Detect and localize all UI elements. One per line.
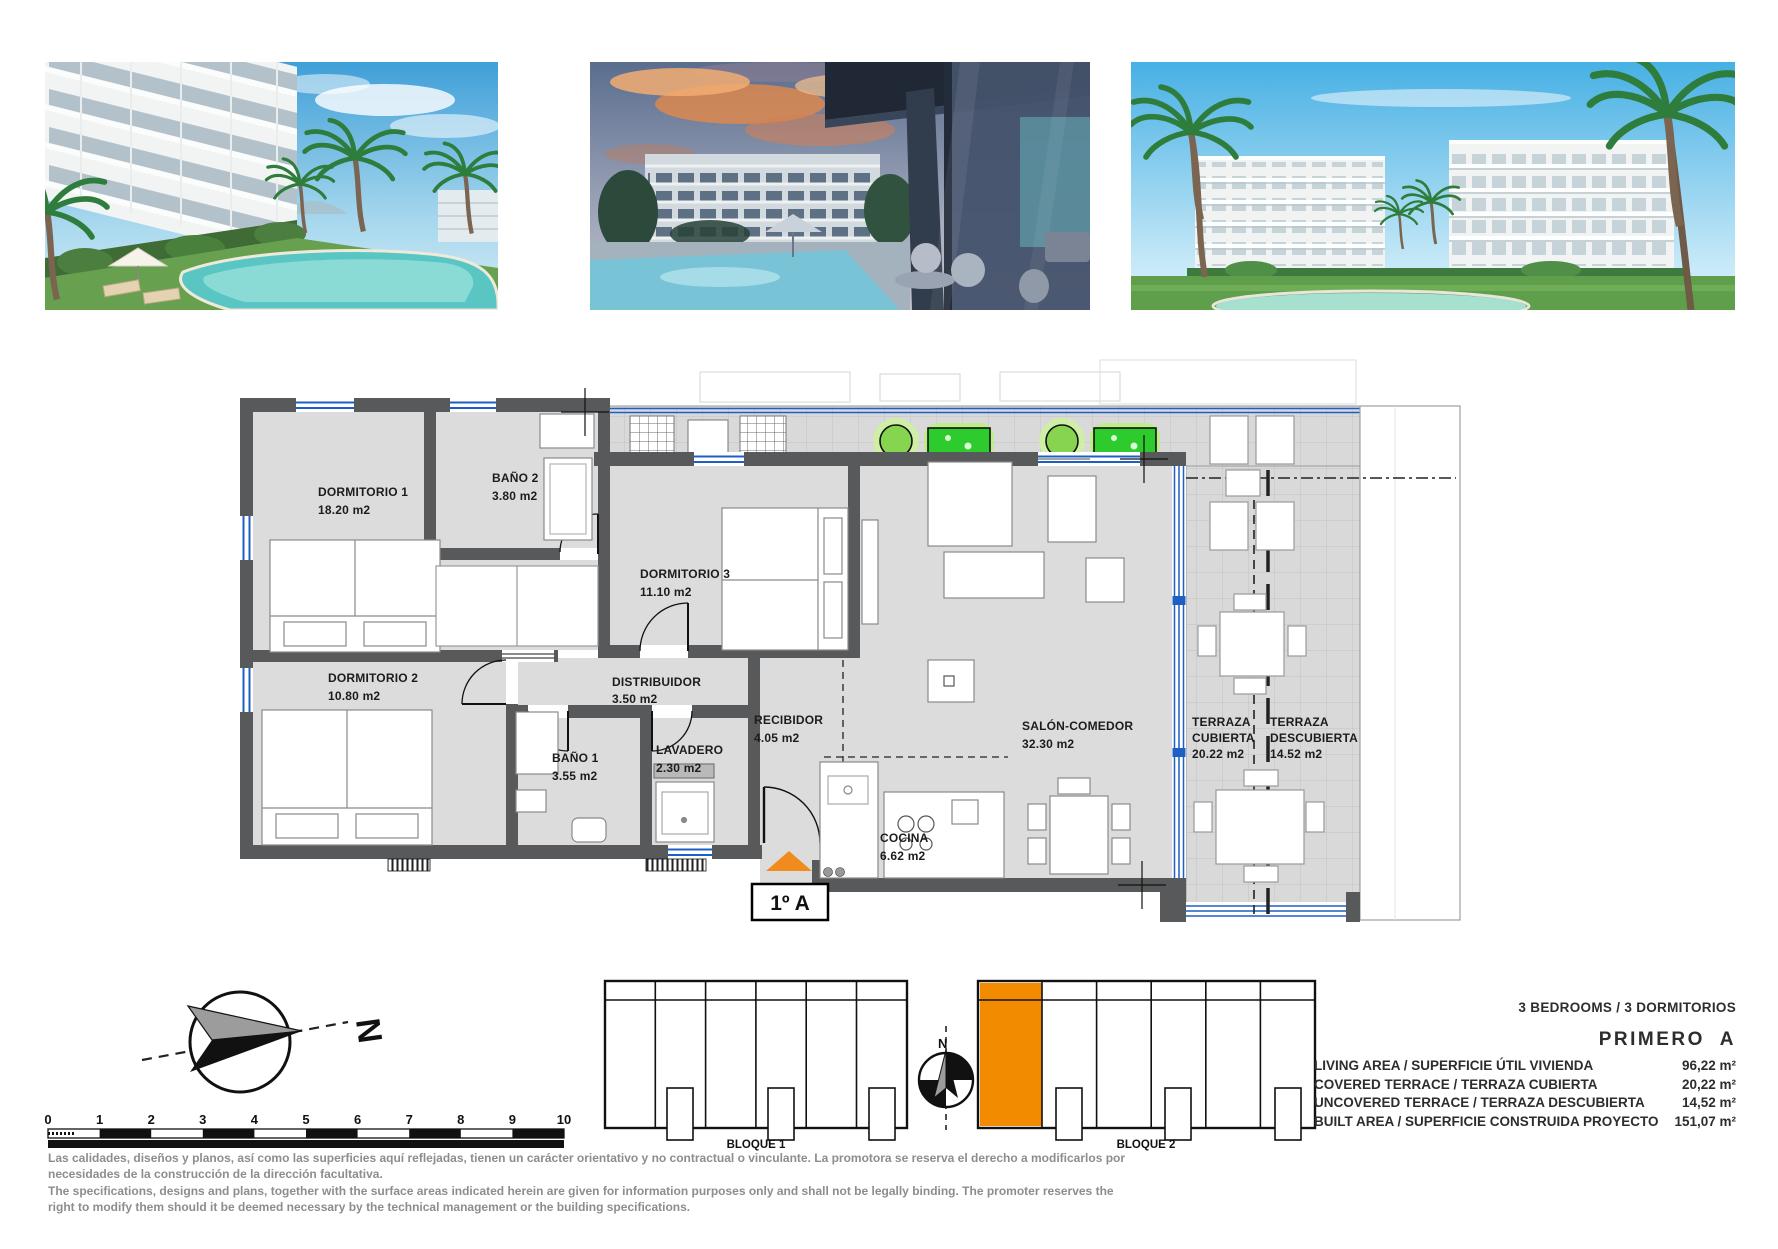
- svg-text:6: 6: [354, 1112, 361, 1127]
- spec-value: 20,22 m²: [1682, 1077, 1736, 1096]
- room-label-recibidor: RECIBIDOR: [754, 713, 823, 727]
- spec-value: 96,22 m²: [1682, 1058, 1736, 1077]
- room-label-terraza-cubierta-1: TERRAZA: [1192, 715, 1251, 729]
- spec-label: BUILT AREA / SUPERFICIE CONSTRUIDA PROYE…: [1314, 1114, 1659, 1133]
- spec-label: UNCOVERED TERRACE / TERRAZA DESCUBIERTA: [1314, 1095, 1645, 1114]
- svg-text:10: 10: [557, 1112, 571, 1127]
- room-label-distribuidor: DISTRIBUIDOR: [612, 675, 701, 689]
- disclaimer-en-line1: The specifications, designs and plans, t…: [48, 1183, 1128, 1199]
- room-area-dormitorio2: 10.80 m2: [328, 689, 380, 703]
- room-area-bano1: 3.55 m2: [552, 769, 598, 783]
- svg-text:8: 8: [457, 1112, 464, 1127]
- spec-row-uncovered: UNCOVERED TERRACE / TERRAZA DESCUBIERTA …: [1280, 1095, 1736, 1114]
- room-area-recibidor: 4.05 m2: [754, 731, 800, 745]
- bloque2-diagram: BLOQUE 2: [978, 981, 1315, 1151]
- spec-row-living: LIVING AREA / SUPERFICIE ÚTIL VIVIENDA 9…: [1280, 1058, 1736, 1077]
- svg-text:7: 7: [406, 1112, 413, 1127]
- room-label-terraza-descubierta-1: TERRAZA: [1270, 715, 1329, 729]
- room-area-cocina: 6.62 m2: [880, 849, 926, 863]
- unit-name: PRIMERO A: [1280, 1029, 1736, 1051]
- room-area-dormitorio1: 18.20 m2: [318, 503, 370, 517]
- spec-value: 14,52 m²: [1682, 1095, 1736, 1114]
- room-label-dormitorio3: DORMITORIO 3: [640, 567, 730, 581]
- scale-bar: 0 1 2 3 4 5 6 7 8 9 10: [44, 1112, 571, 1148]
- svg-text:3: 3: [199, 1112, 206, 1127]
- spec-row-built: BUILT AREA / SUPERFICIE CONSTRUIDA PROYE…: [1280, 1114, 1736, 1133]
- disclaimer-en-line2: right to modify them should it be deemed…: [48, 1199, 1128, 1215]
- room-label-salon: SALÓN-COMEDOR: [1022, 718, 1133, 733]
- site-section: N 0 1 2 3 4 5 6 7 8 9 10: [44, 981, 1315, 1151]
- svg-text:5: 5: [302, 1112, 309, 1127]
- room-label-cocina: COCINA: [880, 831, 929, 845]
- legal-disclaimer: Las calidades, diseños y planos, así com…: [48, 1150, 1128, 1216]
- north-small-label: N: [938, 1036, 947, 1051]
- svg-text:0: 0: [44, 1112, 51, 1127]
- unit-label: 1º A: [770, 892, 810, 915]
- room-label-bano1: BAÑO 1: [552, 750, 599, 765]
- disclaimer-es-line1: Las calidades, diseños y planos, así com…: [48, 1150, 1128, 1166]
- room-label-terraza-cubierta-2: CUBIERTA: [1192, 731, 1255, 745]
- room-area-terraza-descubierta: 14.52 m2: [1270, 747, 1322, 761]
- room-label-dormitorio2: DORMITORIO 2: [328, 671, 418, 685]
- room-label-lavadero: LAVADERO: [656, 743, 723, 757]
- svg-text:4: 4: [251, 1112, 259, 1127]
- room-label-bano2: BAÑO 2: [492, 470, 539, 485]
- room-label-terraza-descubierta-2: DESCUBIERTA: [1270, 731, 1358, 745]
- floor-plan: 1º A: [240, 360, 1460, 922]
- spec-value: 151,07 m²: [1674, 1114, 1736, 1133]
- bloque1-diagram: BLOQUE 1: [605, 981, 907, 1151]
- north-arrow-icon: N: [919, 1026, 973, 1130]
- unit-specs: 3 BEDROOMS / 3 DORMITORIOS PRIMERO A LIV…: [1280, 1000, 1736, 1132]
- north-label: N: [348, 1016, 389, 1046]
- spec-label: LIVING AREA / SUPERFICIE ÚTIL VIVIENDA: [1314, 1058, 1593, 1077]
- svg-text:9: 9: [509, 1112, 516, 1127]
- room-area-bano2: 3.80 m2: [492, 489, 538, 503]
- room-area-lavadero: 2.30 m2: [656, 761, 702, 775]
- spec-row-covered: COVERED TERRACE / TERRAZA CUBIERTA 20,22…: [1280, 1077, 1736, 1096]
- room-area-terraza-cubierta: 20.22 m2: [1192, 747, 1244, 761]
- room-area-distribuidor: 3.50 m2: [612, 692, 658, 706]
- svg-text:2: 2: [148, 1112, 155, 1127]
- spec-label: COVERED TERRACE / TERRAZA CUBIERTA: [1314, 1077, 1598, 1096]
- svg-text:1: 1: [96, 1112, 103, 1127]
- bedrooms-line: 3 BEDROOMS / 3 DORMITORIOS: [1280, 1000, 1736, 1015]
- room-area-dormitorio3: 11.10 m2: [640, 585, 692, 599]
- compass-icon: N: [142, 992, 389, 1092]
- disclaimer-es-line2: necesidades de la construcción de la dir…: [48, 1166, 1128, 1182]
- unit-label-box: 1º A: [752, 884, 828, 920]
- highlighted-unit: [980, 983, 1042, 1126]
- room-area-salon: 32.30 m2: [1022, 737, 1074, 751]
- room-label-dormitorio1: DORMITORIO 1: [318, 485, 408, 499]
